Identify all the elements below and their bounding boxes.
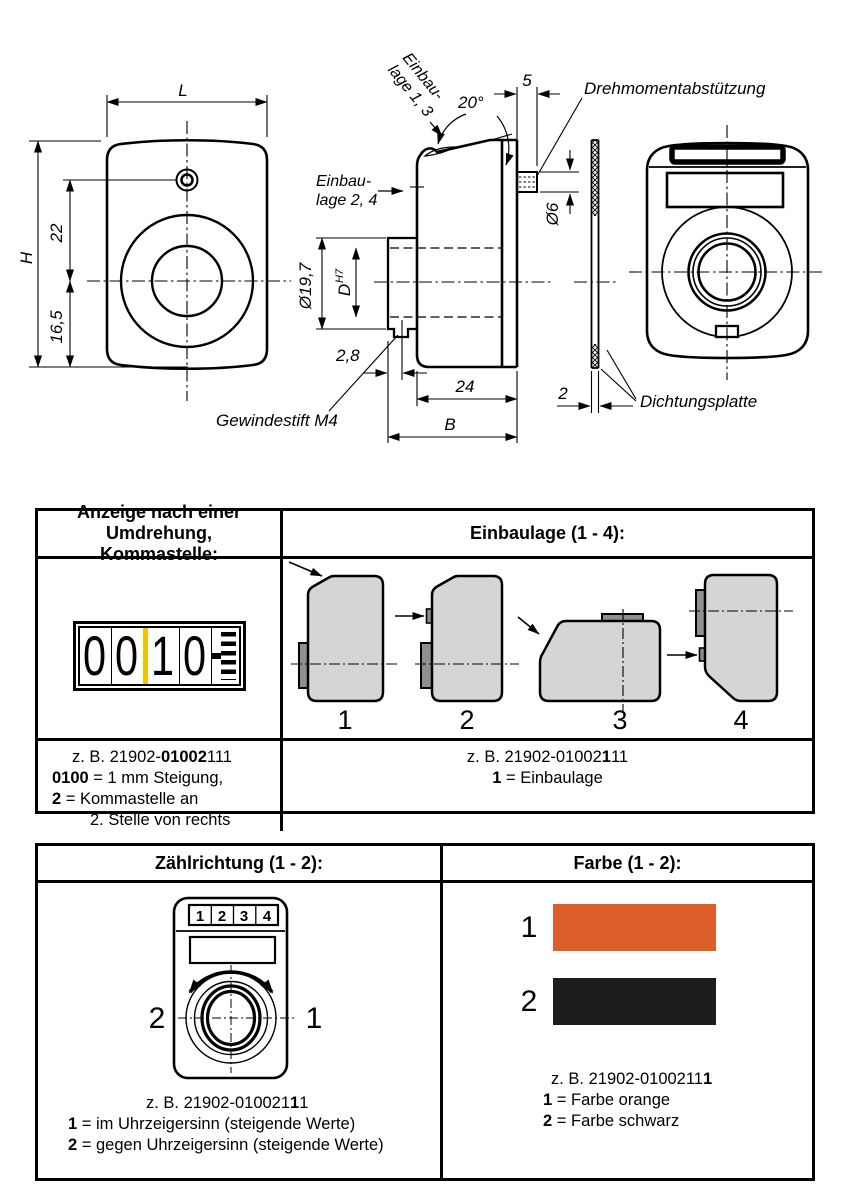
device-digit-2: 2: [218, 908, 226, 925]
dim-24: 24: [455, 377, 475, 396]
counter-knurl-notch: [212, 653, 221, 659]
dim-D: D: [335, 284, 354, 296]
dim-d6: Ø6: [543, 202, 562, 226]
dim-d197-ext: [316, 238, 386, 329]
dim-5-ext: [517, 87, 537, 166]
position-4-tab: [696, 590, 705, 636]
position-4-figure: 4: [667, 575, 793, 735]
datasheet-page: L H 22 16,5 20° Einbau- lage 1, 3: [0, 0, 848, 1200]
einbaulage-13-arrow: [430, 122, 442, 136]
color-swatch-black: [553, 978, 716, 1025]
table1-footer-right: z. B. 21902-01002111 1 = Einbaulage: [283, 738, 812, 831]
device-digit-1: 1: [196, 908, 204, 925]
side-view: 20° Einbau- lage 1, 3 Einbau- lage 2, 4 …: [216, 50, 579, 443]
dim-2-ext: [592, 371, 599, 413]
table2-header-right: Farbe (1 - 2):: [443, 846, 812, 883]
position-4-body: [705, 575, 777, 701]
dim-d197: Ø19,7: [296, 262, 315, 310]
counter-digit-4: 0: [180, 628, 212, 684]
torque-pin-hatch: [519, 177, 535, 187]
order-code-caption-einbaulage: z. B. 21902-01002111 1 = Einbaulage: [467, 747, 628, 789]
front-view: L H 22 16,5: [17, 81, 291, 401]
counter-knurl: [212, 628, 239, 684]
dim-16-5: 16,5: [47, 310, 66, 344]
counting-direction-figure: 1 2 3 4 2 1: [144, 885, 334, 1085]
dim-D-tolerance: H7: [334, 268, 346, 283]
einbaulage-24-line1: Einbau-: [316, 173, 371, 190]
swatch-row-orange: 1: [443, 904, 812, 951]
swatch-label-2: 2: [515, 985, 543, 1019]
set-screw-label: Gewindestift M4: [216, 411, 338, 430]
counter-window: 0 0 1 0: [78, 626, 241, 686]
table2-body-right: 1 2 z. B. 21902-01002111 1 = Farbe orang…: [443, 883, 812, 1178]
table1-header-left: Anzeige nach einer Umdrehung, Kommastell…: [38, 511, 283, 559]
seal-plate-view: 2 Dichtungsplatte Drehmomentabstützung: [537, 79, 766, 413]
swatch-row-black: 2: [443, 978, 812, 1025]
position-3-arrow: [518, 617, 539, 634]
position-2-label: 2: [459, 705, 474, 735]
seal-plate-hatch-bottom: [592, 344, 599, 368]
order-code-caption-zaehlrichtung: z. B. 21902-01002111 1 = im Uhrzeigersin…: [68, 1093, 384, 1156]
dim-L: L: [178, 81, 187, 100]
position-2-body: [432, 576, 502, 701]
position-4-label: 4: [733, 705, 748, 735]
position-2-tab: [421, 643, 432, 688]
position-3-figure: 3: [518, 609, 660, 735]
back-view: [629, 125, 825, 380]
counter-digit-1: 0: [80, 628, 112, 684]
table1-body-left: 0 0 1 0: [38, 559, 283, 738]
table1-body-right: 1 2 3: [283, 559, 812, 738]
dim-B: B: [444, 415, 455, 434]
side-front-plate: [502, 140, 517, 367]
seal-plate-hatch-top: [592, 140, 599, 216]
table1-header-right: Einbaulage (1 - 4):: [283, 511, 812, 559]
device-label-window: [190, 937, 275, 963]
position-3-label: 3: [612, 705, 627, 735]
position-1-tab: [299, 643, 308, 688]
position-3-body: [540, 621, 660, 701]
color-swatch-orange: [553, 904, 716, 951]
table2-body-left: 1 2 3 4 2 1 z. B. 21: [38, 883, 443, 1178]
device-digit-3: 3: [240, 908, 248, 925]
table1-footer-left: z. B. 21902-01002111 0100 = 1 mm Steigun…: [38, 738, 283, 831]
position-1-label: 1: [337, 705, 352, 735]
einbaulage-positions-figure: 1 2 3: [283, 559, 812, 737]
counter-knurl-bars: [221, 632, 236, 680]
direction-label-ccw: 2: [149, 1002, 166, 1035]
dim-28: 2,8: [335, 346, 360, 365]
torque-support-label: Drehmomentabstützung: [584, 79, 766, 98]
table2-header-left: Zählrichtung (1 - 2):: [38, 846, 443, 883]
order-code-caption-farbe: z. B. 21902-01002111 1 = Farbe orange 2 …: [543, 1069, 712, 1132]
counter-digit-2: 0: [112, 628, 143, 684]
swatch-label-1: 1: [515, 911, 543, 945]
device-digit-4: 4: [263, 908, 272, 925]
counter-digit-3: 1: [148, 628, 180, 684]
einbaulage-13-label: Einbau- lage 1, 3: [384, 50, 451, 120]
dim-d6-ext: [540, 172, 579, 192]
direction-label-cw: 1: [306, 1002, 323, 1035]
torque-support-leader: [537, 98, 582, 176]
dim-5: 5: [522, 71, 532, 90]
dim-H: H: [17, 251, 36, 264]
position-1-body: [308, 576, 383, 701]
order-code-caption-kommastelle: z. B. 21902-01002111 0100 = 1 mm Steigun…: [52, 747, 232, 831]
dim-22: 22: [47, 223, 66, 243]
dim-2: 2: [557, 384, 568, 403]
technical-drawing: L H 22 16,5 20° Einbau- lage 1, 3: [0, 0, 848, 460]
position-2-figure: 2: [395, 576, 519, 735]
counter-display: 0 0 1 0: [73, 621, 246, 691]
seal-plate-label: Dichtungsplatte: [640, 392, 757, 411]
position-1-figure: 1: [289, 562, 400, 735]
einbaulage-24-line2: lage 2, 4: [316, 192, 377, 209]
position-1-arrow: [289, 562, 322, 576]
seal-plate-leaders: [601, 350, 636, 401]
table-anzeige-einbaulage: Anzeige nach einer Umdrehung, Kommastell…: [35, 508, 815, 814]
back-label-window: [667, 173, 783, 207]
angle-arc-left: [438, 114, 466, 144]
table-zaehlrichtung-farbe: Zählrichtung (1 - 2): Farbe (1 - 2): 1 2…: [35, 843, 815, 1181]
angle-label: 20°: [457, 93, 484, 112]
